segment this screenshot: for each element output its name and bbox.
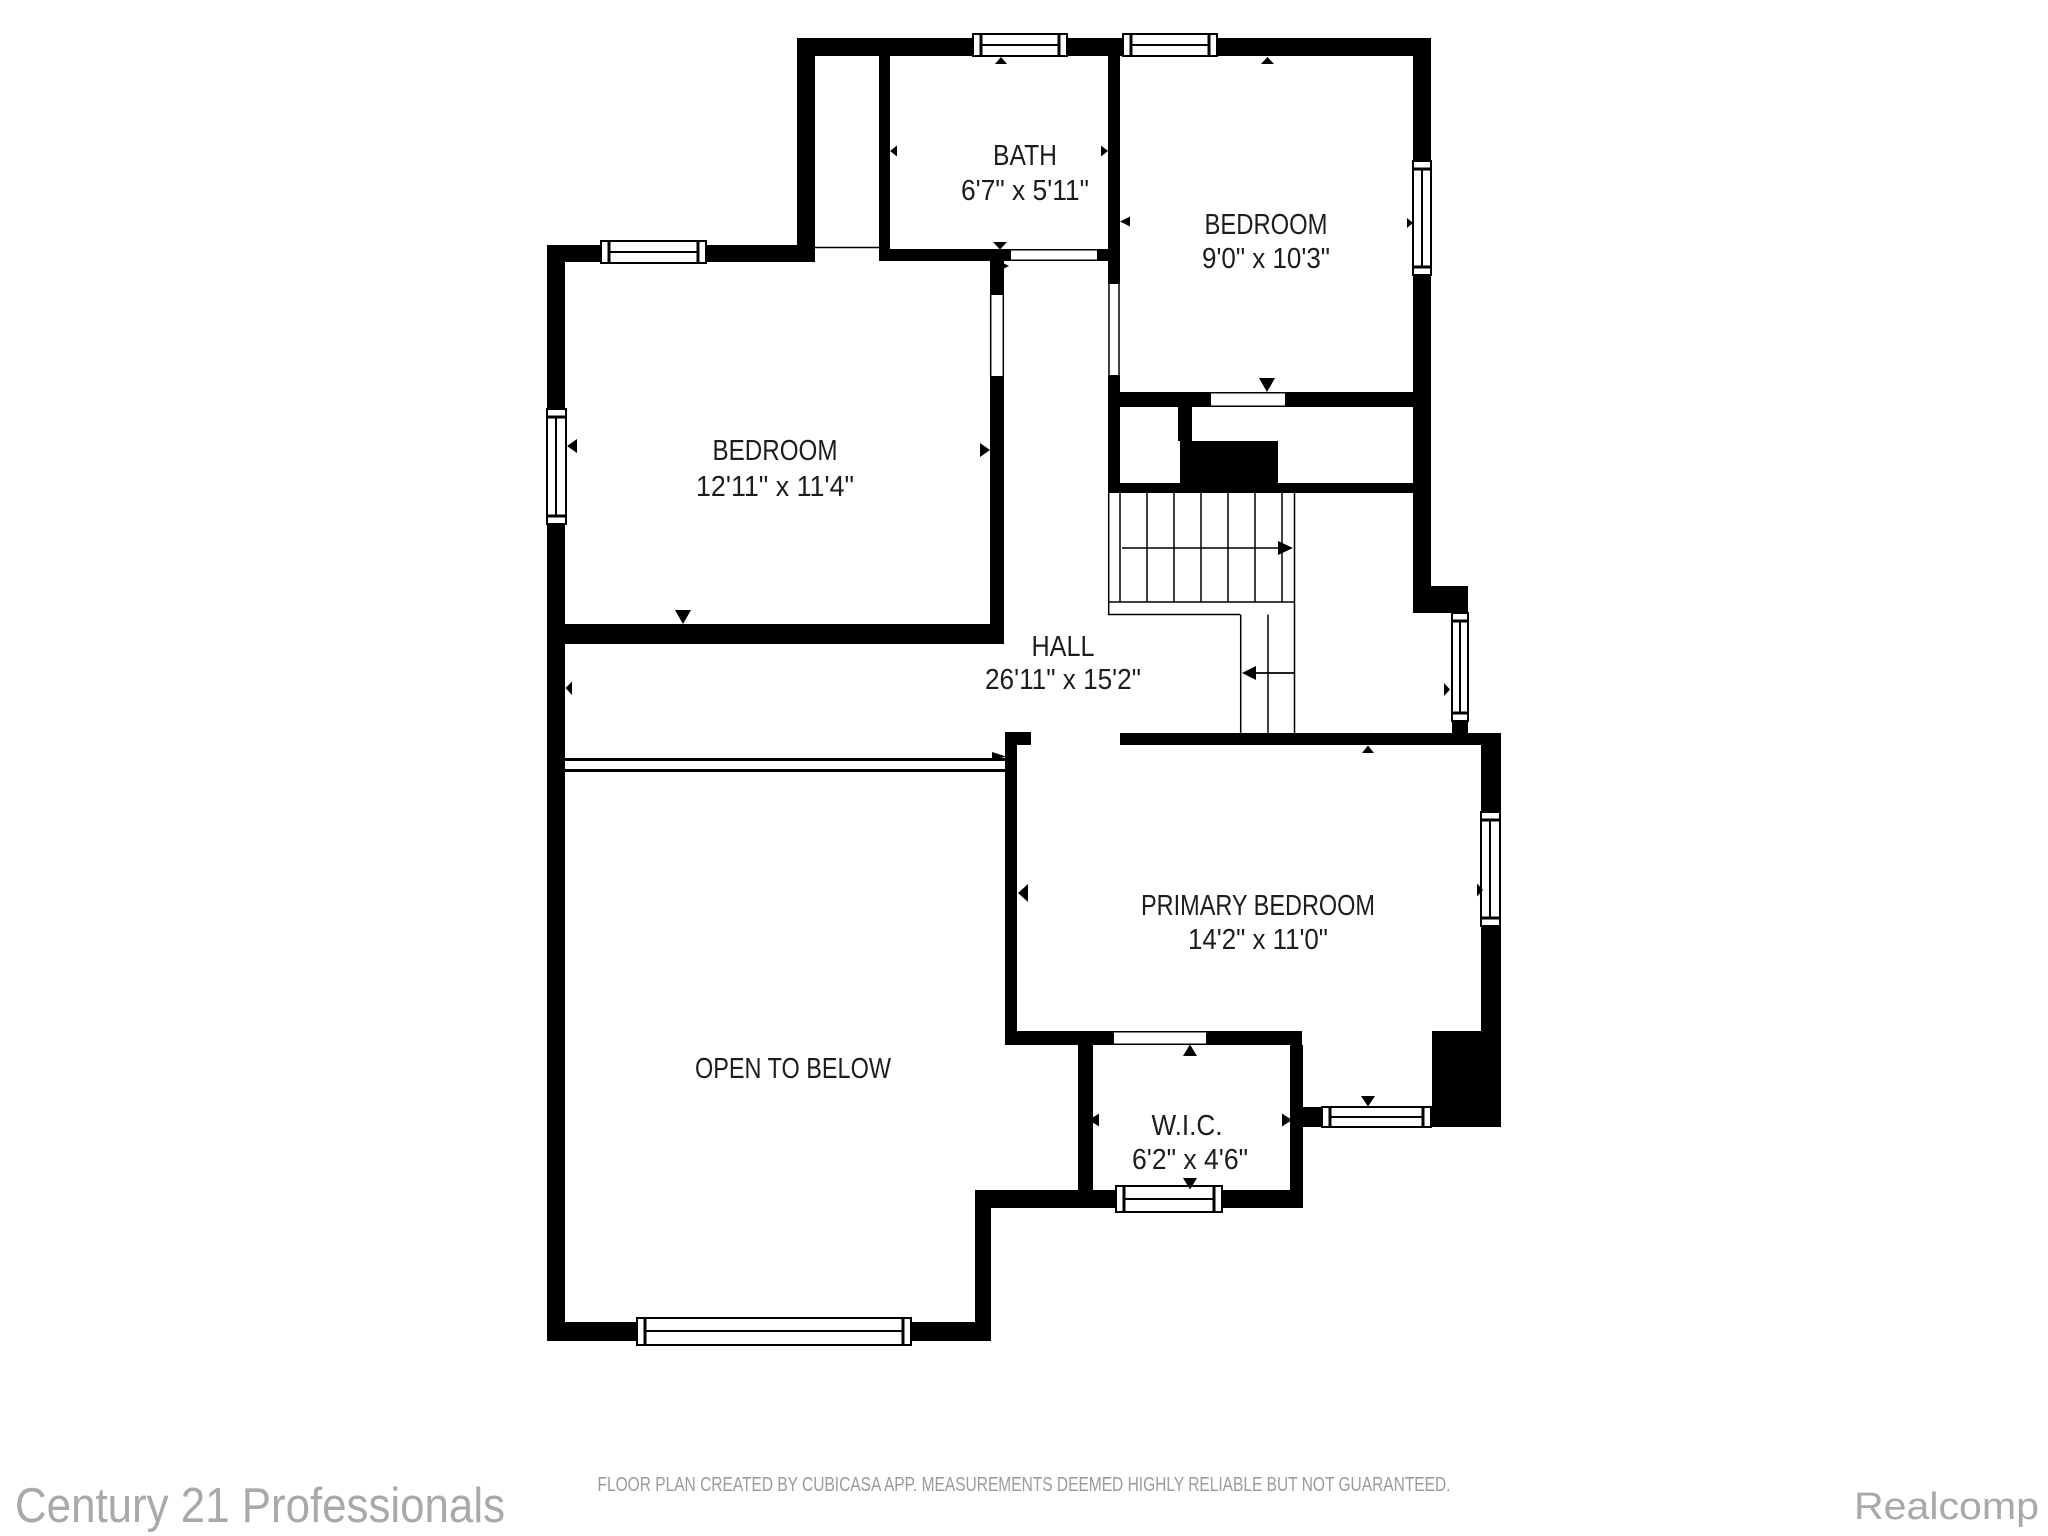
svg-text:OPEN TO BELOW: OPEN TO BELOW bbox=[695, 1053, 891, 1085]
svg-text:BEDROOM: BEDROOM bbox=[713, 435, 838, 467]
svg-text:14'2" x 11'0": 14'2" x 11'0" bbox=[1188, 924, 1328, 956]
svg-text:12'11" x 11'4": 12'11" x 11'4" bbox=[696, 471, 854, 503]
svg-text:FLOOR PLAN CREATED BY CUBICASA: FLOOR PLAN CREATED BY CUBICASA APP. MEAS… bbox=[598, 1474, 1451, 1496]
svg-text:W.I.C.: W.I.C. bbox=[1152, 1110, 1223, 1142]
svg-text:Century 21 Professionals: Century 21 Professionals bbox=[15, 1479, 505, 1533]
svg-text:6'2" x 4'6": 6'2" x 4'6" bbox=[1132, 1144, 1248, 1176]
svg-text:Realcomp: Realcomp bbox=[1854, 1486, 2039, 1528]
svg-text:PRIMARY BEDROOM: PRIMARY BEDROOM bbox=[1141, 890, 1375, 922]
svg-text:26'11" x 15'2": 26'11" x 15'2" bbox=[985, 664, 1141, 696]
svg-text:HALL: HALL bbox=[1032, 631, 1095, 663]
svg-text:BATH: BATH bbox=[993, 140, 1057, 172]
svg-text:6'7" x 5'11": 6'7" x 5'11" bbox=[961, 175, 1089, 207]
svg-text:BEDROOM: BEDROOM bbox=[1205, 209, 1328, 241]
svg-text:9'0" x 10'3": 9'0" x 10'3" bbox=[1202, 243, 1330, 275]
